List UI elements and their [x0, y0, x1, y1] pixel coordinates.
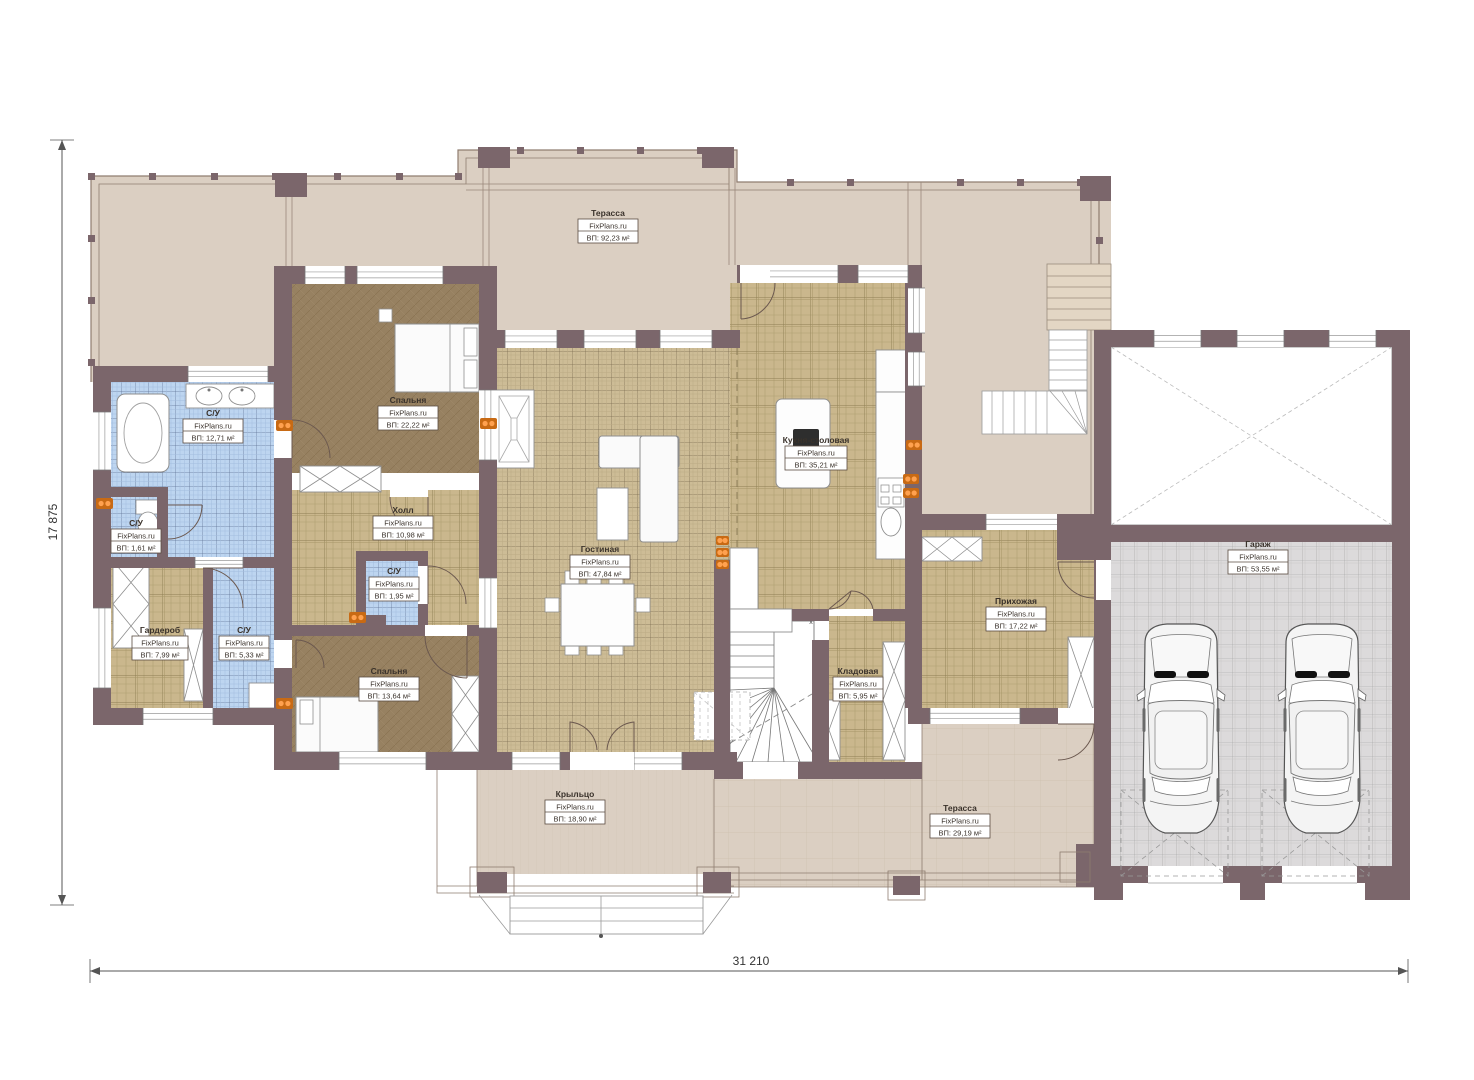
svg-text:С/У: С/У	[129, 518, 144, 528]
svg-text:FixPlans.ru: FixPlans.ru	[370, 680, 408, 689]
svg-text:Гостиная: Гостиная	[581, 544, 619, 554]
svg-text:FixPlans.ru: FixPlans.ru	[997, 610, 1035, 619]
svg-text:FixPlans.ru: FixPlans.ru	[225, 639, 263, 648]
svg-text:ВП: 29,19 м²: ВП: 29,19 м²	[938, 829, 982, 838]
svg-text:ВП: 5,33 м²: ВП: 5,33 м²	[225, 651, 264, 660]
svg-text:Спальня: Спальня	[371, 666, 408, 676]
svg-text:Крыльцо: Крыльцо	[556, 789, 595, 799]
svg-text:ВП: 17,22 м²: ВП: 17,22 м²	[994, 622, 1038, 631]
svg-text:С/У: С/У	[237, 625, 252, 635]
svg-text:FixPlans.ru: FixPlans.ru	[589, 222, 627, 231]
svg-text:Спальня: Спальня	[390, 395, 427, 405]
svg-text:ВП: 1,95 м²: ВП: 1,95 м²	[375, 592, 414, 601]
svg-text:FixPlans.ru: FixPlans.ru	[797, 449, 835, 458]
svg-text:FixPlans.ru: FixPlans.ru	[194, 422, 232, 431]
svg-text:FixPlans.ru: FixPlans.ru	[1239, 553, 1277, 562]
svg-text:Прихожая: Прихожая	[995, 596, 1037, 606]
svg-text:ВП: 22,22 м²: ВП: 22,22 м²	[386, 421, 430, 430]
svg-text:ВП: 1,61 м²: ВП: 1,61 м²	[117, 544, 156, 553]
svg-text:FixPlans.ru: FixPlans.ru	[389, 409, 427, 418]
svg-text:ВП: 18,90 м²: ВП: 18,90 м²	[553, 815, 597, 824]
svg-text:ВП: 13,64 м²: ВП: 13,64 м²	[367, 692, 411, 701]
svg-text:ВП: 92,23 м²: ВП: 92,23 м²	[586, 234, 630, 243]
svg-text:ВП: 12,71 м²: ВП: 12,71 м²	[191, 434, 235, 443]
svg-text:FixPlans.ru: FixPlans.ru	[941, 817, 979, 826]
svg-text:Кухня-столовая: Кухня-столовая	[783, 435, 850, 445]
svg-text:FixPlans.ru: FixPlans.ru	[117, 532, 155, 541]
svg-text:FixPlans.ru: FixPlans.ru	[839, 680, 877, 689]
svg-text:31 210: 31 210	[733, 954, 770, 968]
svg-text:Терасса: Терасса	[591, 208, 625, 218]
svg-text:С/У: С/У	[206, 408, 221, 418]
svg-text:С/У: С/У	[387, 566, 402, 576]
svg-text:ВП: 35,21 м²: ВП: 35,21 м²	[794, 461, 838, 470]
svg-text:ВП: 10,98 м²: ВП: 10,98 м²	[381, 531, 425, 540]
svg-text:FixPlans.ru: FixPlans.ru	[556, 803, 594, 812]
svg-text:ВП: 47,84 м²: ВП: 47,84 м²	[578, 570, 622, 579]
svg-text:Терасса: Терасса	[943, 803, 977, 813]
svg-text:Гардероб: Гардероб	[140, 625, 180, 635]
svg-text:FixPlans.ru: FixPlans.ru	[384, 519, 422, 528]
svg-text:FixPlans.ru: FixPlans.ru	[375, 580, 413, 589]
svg-text:Кладовая: Кладовая	[838, 666, 879, 676]
svg-text:FixPlans.ru: FixPlans.ru	[141, 639, 179, 648]
svg-text:17 875: 17 875	[46, 503, 60, 540]
svg-text:ВП: 7,99 м²: ВП: 7,99 м²	[141, 651, 180, 660]
svg-text:ВП: 5,95 м²: ВП: 5,95 м²	[839, 692, 878, 701]
svg-text:Холл: Холл	[392, 505, 413, 515]
svg-text:FixPlans.ru: FixPlans.ru	[581, 558, 619, 567]
svg-text:Гараж: Гараж	[1245, 539, 1271, 549]
svg-text:ВП: 53,55 м²: ВП: 53,55 м²	[1236, 565, 1280, 574]
